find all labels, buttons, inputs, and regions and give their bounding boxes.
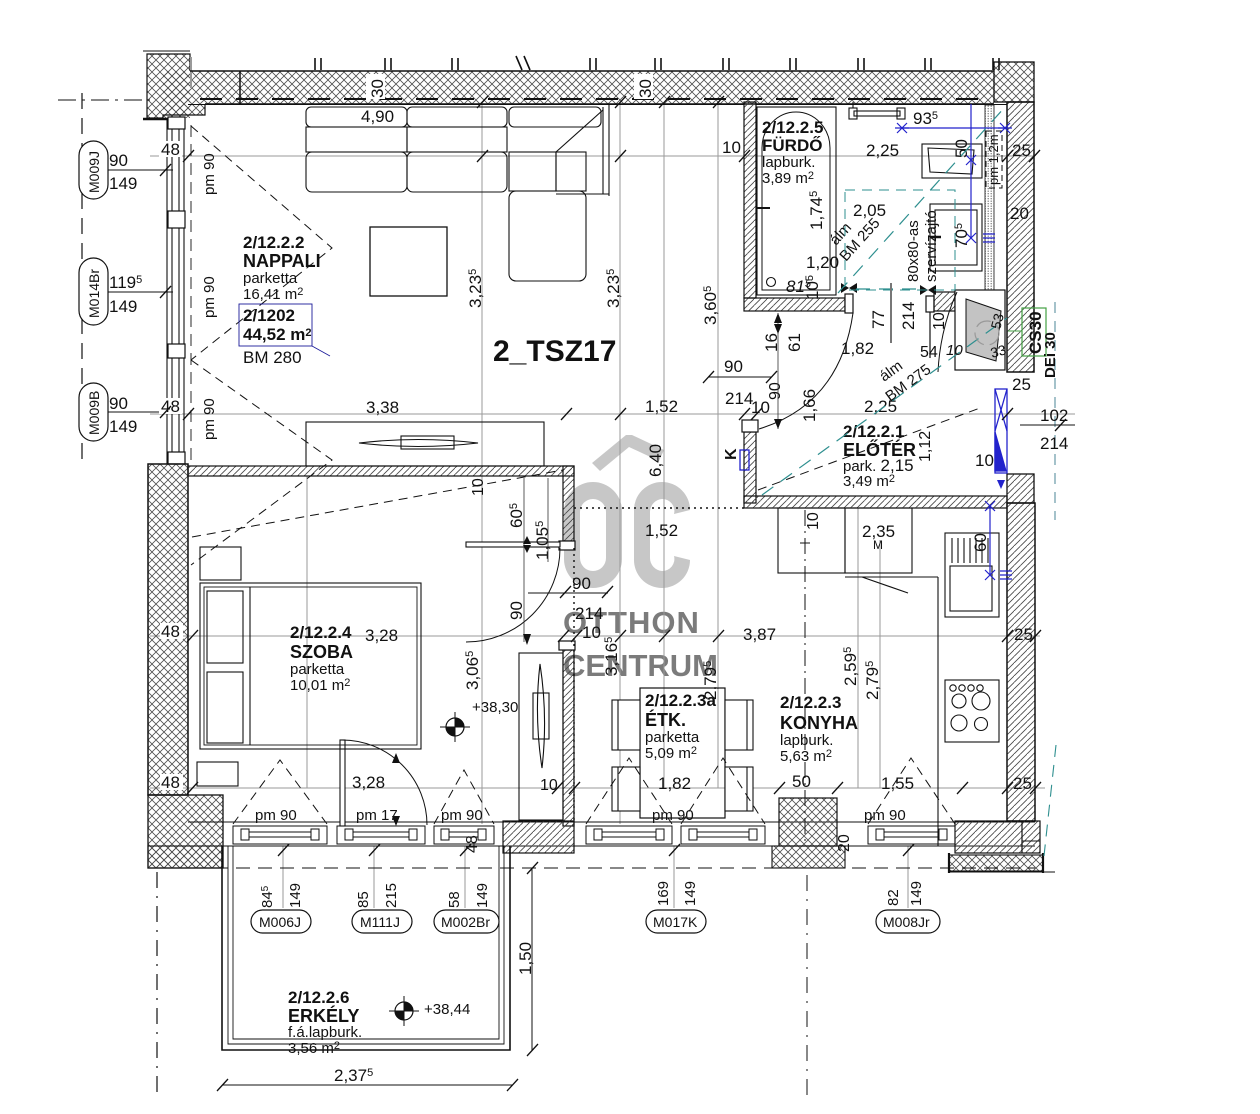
svg-text:149: 149 xyxy=(109,297,137,316)
svg-text:20: 20 xyxy=(1010,204,1029,223)
svg-text:10: 10 xyxy=(805,512,822,530)
svg-text:2/12.2.4: 2/12.2.4 xyxy=(290,623,352,642)
svg-text:CENTRUM: CENTRUM xyxy=(563,648,718,683)
svg-text:DEi 30: DEi 30 xyxy=(1042,332,1059,378)
svg-text:f.á.lapburk.: f.á.lapburk. xyxy=(288,1024,362,1041)
svg-text:90: 90 xyxy=(109,151,128,170)
svg-text:pm 90: pm 90 xyxy=(201,276,218,318)
svg-text:149: 149 xyxy=(287,883,304,908)
svg-text:pm 90: pm 90 xyxy=(652,807,694,824)
svg-text:10: 10 xyxy=(470,478,487,496)
svg-text:parketta: parketta xyxy=(645,729,700,746)
svg-text:1,82: 1,82 xyxy=(658,774,691,793)
svg-text:48: 48 xyxy=(464,835,481,853)
svg-text:3,38: 3,38 xyxy=(366,398,399,417)
svg-text:1,52: 1,52 xyxy=(645,397,678,416)
svg-text:2/12.2.6: 2/12.2.6 xyxy=(288,988,349,1007)
svg-text:54: 54 xyxy=(920,344,938,361)
svg-text:3,49 m2: 3,49 m2 xyxy=(843,473,895,490)
svg-text:BM 280: BM 280 xyxy=(243,348,302,367)
svg-text:58: 58 xyxy=(446,891,463,908)
svg-text:10,01 m2: 10,01 m2 xyxy=(290,677,350,694)
svg-text:szervízajtó: szervízajtó xyxy=(923,210,940,282)
svg-text:44,52 m2: 44,52 m2 xyxy=(243,325,312,344)
svg-text:20: 20 xyxy=(836,834,853,852)
svg-text:M002Br: M002Br xyxy=(441,914,490,930)
svg-text:10: 10 xyxy=(946,342,963,359)
svg-text:2/12.2.5: 2/12.2.5 xyxy=(762,118,823,137)
svg-text:ÉTK.: ÉTK. xyxy=(645,709,686,730)
svg-text:215: 215 xyxy=(383,883,400,908)
svg-text:1,20: 1,20 xyxy=(806,253,839,272)
svg-text:10: 10 xyxy=(582,623,601,642)
svg-text:M008Jr: M008Jr xyxy=(883,914,930,930)
svg-text:214: 214 xyxy=(1040,434,1068,453)
svg-text:77: 77 xyxy=(869,310,888,329)
svg-text:80x80-as: 80x80-as xyxy=(905,220,922,282)
svg-text:2/12.2.1: 2/12.2.1 xyxy=(843,422,904,441)
svg-text:1,55: 1,55 xyxy=(881,774,914,793)
svg-text:30: 30 xyxy=(636,79,655,98)
svg-text:pm 90: pm 90 xyxy=(201,153,218,195)
svg-text:pm 90: pm 90 xyxy=(201,398,218,440)
svg-text:6,40: 6,40 xyxy=(646,444,665,477)
svg-text:149: 149 xyxy=(908,881,925,906)
svg-text:pm 90: pm 90 xyxy=(864,807,906,824)
svg-text:25: 25 xyxy=(1012,141,1031,160)
svg-text:60: 60 xyxy=(971,533,990,552)
svg-text:M009B: M009B xyxy=(86,391,102,435)
svg-text:pm 1,2m: pm 1,2m xyxy=(986,134,1001,185)
svg-text:10: 10 xyxy=(931,312,948,330)
svg-text:149: 149 xyxy=(682,881,699,906)
svg-text:parketta: parketta xyxy=(243,270,298,287)
svg-text:30: 30 xyxy=(368,79,387,98)
svg-text:149: 149 xyxy=(474,883,491,908)
svg-text:M006J: M006J xyxy=(259,914,301,930)
svg-text:+38,30: +38,30 xyxy=(472,699,518,716)
svg-text:parketta: parketta xyxy=(290,661,345,678)
svg-text:lapburk.: lapburk. xyxy=(762,154,815,171)
svg-text:5,63 m2: 5,63 m2 xyxy=(780,748,832,765)
svg-text:214: 214 xyxy=(899,302,918,330)
svg-text:214: 214 xyxy=(575,604,603,623)
svg-text:149: 149 xyxy=(109,417,137,436)
svg-text:4,90: 4,90 xyxy=(361,107,394,126)
svg-text:2/12.2.3: 2/12.2.3 xyxy=(780,693,841,712)
svg-text:pm 90: pm 90 xyxy=(441,807,483,824)
svg-text:M014Br: M014Br xyxy=(86,269,102,318)
svg-text:1,82: 1,82 xyxy=(841,339,874,358)
svg-text:3,87: 3,87 xyxy=(743,625,776,644)
svg-text:169: 169 xyxy=(655,881,672,906)
svg-text:82: 82 xyxy=(885,889,902,906)
svg-text:90: 90 xyxy=(767,382,784,400)
svg-text:214: 214 xyxy=(725,389,753,408)
svg-text:10: 10 xyxy=(722,138,741,157)
svg-text:2_TSZ17: 2_TSZ17 xyxy=(493,335,616,368)
svg-text:lapburk.: lapburk. xyxy=(780,732,833,749)
svg-text:1,12: 1,12 xyxy=(917,431,934,462)
svg-text:KONYHA: KONYHA xyxy=(780,713,858,733)
svg-text:149: 149 xyxy=(109,174,137,193)
svg-text:3,56 m2: 3,56 m2 xyxy=(288,1040,340,1057)
svg-text:SZOBA: SZOBA xyxy=(290,642,353,662)
svg-text:NAPPALI: NAPPALI xyxy=(243,251,321,271)
svg-text:102: 102 xyxy=(1040,406,1068,425)
svg-text:M017K: M017K xyxy=(653,914,698,930)
svg-text:2/12.2.2: 2/12.2.2 xyxy=(243,233,304,252)
svg-text:+38,44: +38,44 xyxy=(424,1001,470,1018)
svg-text:90: 90 xyxy=(109,394,128,413)
svg-text:K: K xyxy=(723,448,740,460)
svg-text:1,52: 1,52 xyxy=(645,521,678,540)
svg-text:48: 48 xyxy=(161,622,180,641)
svg-text:2/1202: 2/1202 xyxy=(243,306,295,325)
svg-text:90: 90 xyxy=(507,601,526,620)
svg-text:48: 48 xyxy=(161,773,180,792)
svg-text:FÜRDŐ: FÜRDŐ xyxy=(762,136,822,155)
svg-text:25: 25 xyxy=(1012,375,1031,394)
svg-text:85: 85 xyxy=(355,891,372,908)
svg-text:1,66: 1,66 xyxy=(800,389,819,422)
svg-text:3,28: 3,28 xyxy=(352,773,385,792)
svg-text:50: 50 xyxy=(792,772,811,791)
svg-text:2,25: 2,25 xyxy=(866,141,899,160)
svg-text:M: M xyxy=(873,538,883,552)
svg-text:16,41 m2: 16,41 m2 xyxy=(243,286,303,303)
svg-text:90: 90 xyxy=(572,574,591,593)
svg-text:3,89 m2: 3,89 m2 xyxy=(762,170,814,187)
svg-text:ERKÉLY: ERKÉLY xyxy=(288,1005,359,1026)
svg-text:pm 17: pm 17 xyxy=(356,807,398,824)
svg-text:61: 61 xyxy=(785,333,804,352)
svg-text:M009J: M009J xyxy=(86,151,102,193)
svg-text:25: 25 xyxy=(1013,774,1032,793)
svg-text:5,09 m2: 5,09 m2 xyxy=(645,745,697,762)
svg-text:3,28: 3,28 xyxy=(365,626,398,645)
svg-text:M111J: M111J xyxy=(360,914,400,930)
svg-text:pm 90: pm 90 xyxy=(255,807,297,824)
svg-text:90: 90 xyxy=(724,357,743,376)
svg-text:10: 10 xyxy=(975,451,994,470)
svg-text:48: 48 xyxy=(161,140,180,159)
